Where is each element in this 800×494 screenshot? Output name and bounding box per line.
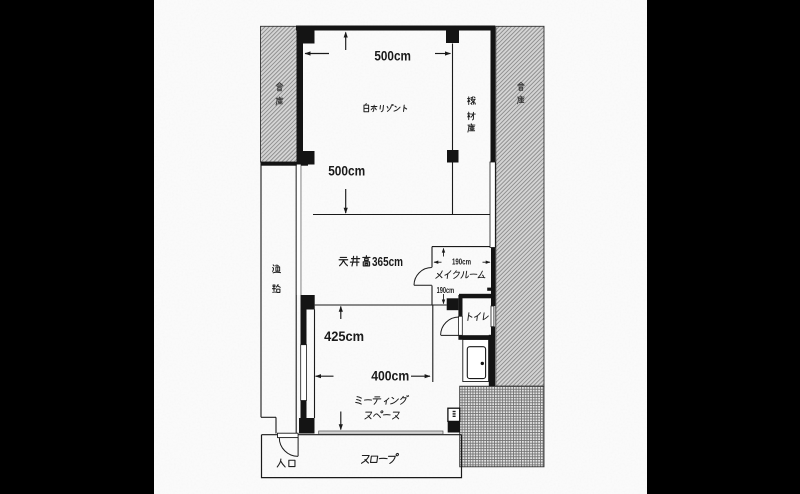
svg-text:190cm: 190cm (452, 257, 471, 267)
svg-text:425cm: 425cm (324, 328, 364, 344)
svg-text:500cm: 500cm (328, 163, 365, 179)
svg-text:400cm: 400cm (371, 368, 409, 384)
svg-text:500cm: 500cm (374, 48, 411, 64)
svg-text:190cm: 190cm (437, 285, 455, 295)
svg-text:365cm: 365cm (372, 255, 403, 269)
